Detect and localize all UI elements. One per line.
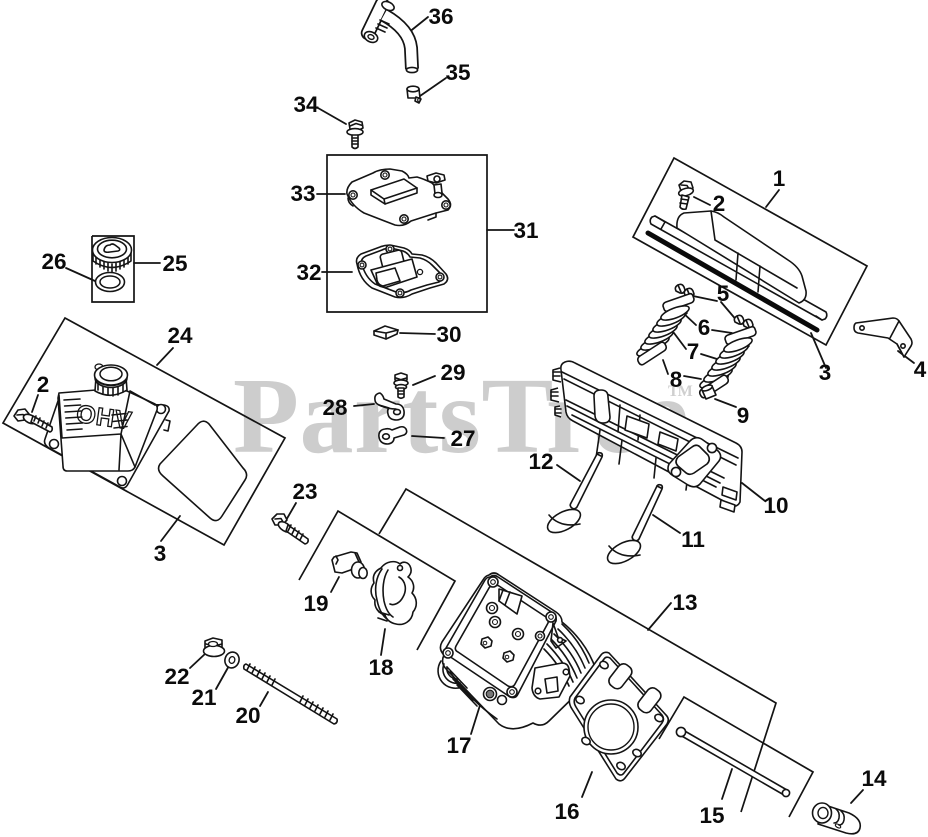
svg-text:15: 15 — [699, 803, 724, 828]
svg-text:3: 3 — [819, 360, 832, 385]
svg-text:25: 25 — [162, 251, 187, 276]
svg-text:1: 1 — [773, 166, 786, 191]
svg-text:9: 9 — [737, 403, 750, 428]
svg-text:2: 2 — [713, 191, 726, 216]
svg-text:36: 36 — [428, 4, 453, 29]
svg-text:32: 32 — [296, 260, 321, 285]
svg-text:5: 5 — [717, 281, 730, 306]
svg-text:6: 6 — [698, 315, 711, 340]
svg-text:29: 29 — [440, 360, 465, 385]
svg-text:10: 10 — [763, 493, 788, 518]
svg-text:7: 7 — [687, 339, 700, 364]
svg-text:11: 11 — [681, 527, 705, 552]
svg-text:19: 19 — [303, 591, 328, 616]
svg-text:20: 20 — [235, 703, 260, 728]
svg-text:22: 22 — [164, 664, 189, 689]
svg-text:27: 27 — [450, 426, 475, 451]
svg-text:28: 28 — [322, 395, 347, 420]
svg-text:26: 26 — [41, 249, 66, 274]
svg-text:14: 14 — [861, 766, 887, 791]
svg-text:23: 23 — [292, 479, 317, 504]
svg-text:35: 35 — [445, 60, 470, 85]
svg-text:8: 8 — [670, 367, 683, 392]
svg-text:18: 18 — [368, 655, 393, 680]
svg-text:4: 4 — [914, 357, 927, 382]
svg-text:21: 21 — [191, 685, 216, 710]
svg-text:16: 16 — [554, 799, 579, 824]
svg-text:30: 30 — [436, 322, 461, 347]
svg-text:2: 2 — [37, 372, 50, 397]
svg-text:3: 3 — [154, 541, 167, 566]
svg-text:34: 34 — [293, 92, 319, 117]
svg-text:17: 17 — [446, 733, 471, 758]
svg-text:13: 13 — [672, 590, 697, 615]
svg-text:24: 24 — [167, 323, 193, 348]
svg-text:31: 31 — [513, 218, 538, 243]
svg-text:33: 33 — [290, 181, 315, 206]
svg-text:12: 12 — [528, 449, 553, 474]
